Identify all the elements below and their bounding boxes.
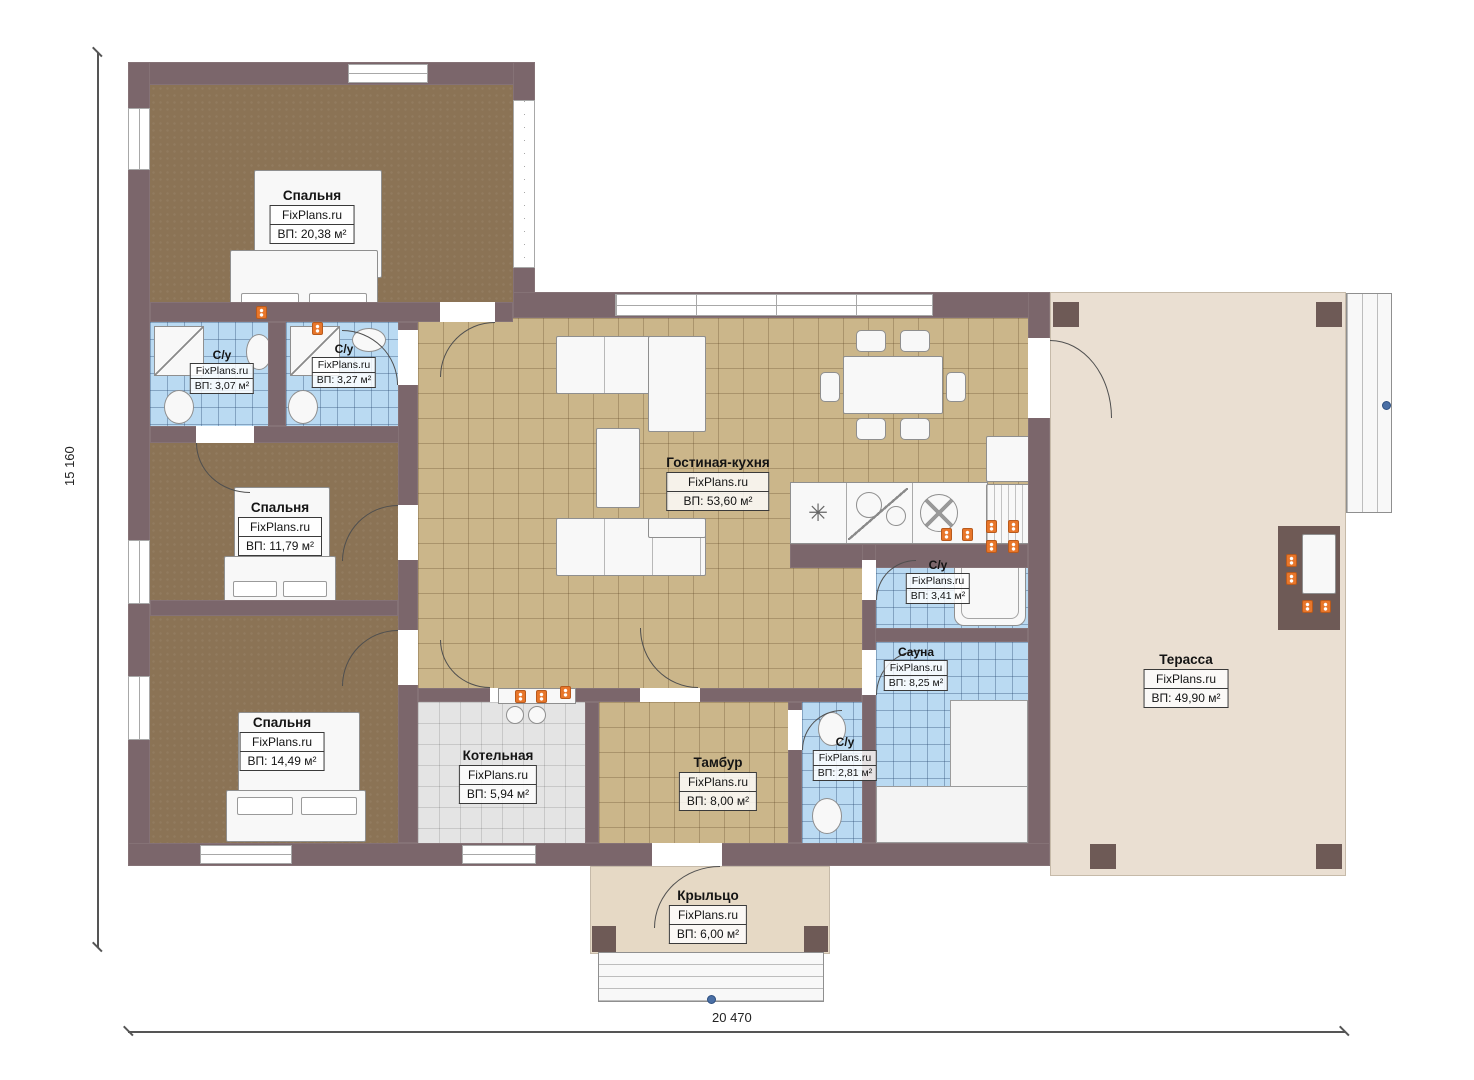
window bbox=[128, 108, 150, 170]
wall bbox=[150, 426, 418, 443]
room-label-sauna: Сауна FixPlans.ru ВП: 8,25 м² bbox=[884, 645, 948, 691]
brand-watermark: FixPlans.ru bbox=[884, 660, 948, 676]
faucet-line bbox=[848, 488, 908, 540]
outlet-icon bbox=[536, 690, 547, 703]
room-label-bedroom-1: Спальня FixPlans.ru ВП: 20,38 м² bbox=[270, 188, 355, 244]
door-opening bbox=[440, 302, 495, 322]
chair bbox=[900, 418, 930, 440]
wall bbox=[128, 62, 150, 866]
boiler-unit bbox=[506, 706, 524, 724]
brand-watermark: FixPlans.ru bbox=[190, 363, 254, 379]
room-area: ВП: 3,41 м² bbox=[906, 589, 970, 604]
window bbox=[615, 294, 933, 316]
room-label-bedroom-3: Спальня FixPlans.ru ВП: 14,49 м² bbox=[240, 715, 325, 771]
outlet-icon bbox=[1286, 572, 1297, 585]
room-label-bathroom-3: С/у FixPlans.ru ВП: 3,41 м² bbox=[906, 558, 970, 604]
room-label-living-kitchen: Гостиная-кухня FixPlans.ru ВП: 53,60 м² bbox=[666, 455, 769, 511]
bed bbox=[224, 556, 336, 602]
brand-watermark: FixPlans.ru bbox=[1144, 669, 1229, 689]
room-area: ВП: 3,27 м² bbox=[312, 373, 376, 388]
door-opening bbox=[788, 710, 802, 750]
outlet-icon bbox=[986, 540, 997, 553]
sofa-chaise bbox=[648, 336, 706, 432]
dimension-label-height: 15 160 bbox=[62, 446, 77, 486]
door-opening bbox=[862, 560, 876, 600]
chair bbox=[900, 330, 930, 352]
room-name: Сауна bbox=[884, 645, 948, 659]
counter-divider bbox=[846, 483, 847, 543]
brand-watermark: FixPlans.ru bbox=[312, 357, 376, 373]
brand-watermark: FixPlans.ru bbox=[270, 205, 355, 225]
toilet bbox=[288, 390, 318, 424]
room-area: ВП: 53,60 м² bbox=[666, 492, 769, 511]
brand-watermark: FixPlans.ru bbox=[813, 750, 877, 766]
door-opening bbox=[196, 426, 254, 443]
porch-post bbox=[804, 926, 828, 952]
sauna-bench bbox=[876, 786, 1028, 843]
pillow bbox=[283, 581, 327, 597]
window bbox=[128, 540, 150, 604]
door-opening bbox=[862, 650, 876, 695]
porch-post bbox=[592, 926, 616, 952]
wall bbox=[585, 702, 599, 843]
room-label-tambour: Тамбур FixPlans.ru ВП: 8,00 м² bbox=[679, 755, 757, 811]
room-area: ВП: 20,38 м² bbox=[270, 225, 355, 244]
pillow bbox=[237, 797, 293, 815]
room-area: ВП: 8,25 м² bbox=[884, 676, 948, 691]
brand-watermark: FixPlans.ru bbox=[906, 573, 970, 589]
floor-plan: 15 160 20 470 bbox=[0, 0, 1474, 1080]
dining-table bbox=[843, 356, 943, 414]
outlet-icon bbox=[1320, 600, 1331, 613]
dimension-line-horizontal bbox=[128, 1031, 1345, 1033]
room-name: С/у bbox=[813, 735, 877, 749]
room-name: Спальня bbox=[240, 715, 325, 730]
chair bbox=[856, 418, 886, 440]
entry-marker bbox=[707, 995, 716, 1004]
dimension-label-width: 20 470 bbox=[712, 1010, 752, 1025]
outlet-icon bbox=[1302, 600, 1313, 613]
room-area: ВП: 2,81 м² bbox=[813, 766, 877, 781]
room-label-boiler-room: Котельная FixPlans.ru ВП: 5,94 м² bbox=[459, 748, 537, 804]
dimension-line-vertical bbox=[97, 52, 99, 948]
wall bbox=[862, 628, 1028, 642]
brand-watermark: FixPlans.ru bbox=[666, 472, 769, 492]
kitchen-cabinet bbox=[986, 484, 1030, 544]
window bbox=[348, 64, 428, 83]
toilet bbox=[812, 798, 842, 834]
room-label-bedroom-2: Спальня FixPlans.ru ВП: 11,79 м² bbox=[238, 500, 322, 556]
room-area: ВП: 8,00 м² bbox=[679, 792, 757, 811]
outlet-icon bbox=[312, 322, 323, 335]
window bbox=[200, 845, 292, 864]
brand-watermark: FixPlans.ru bbox=[238, 517, 322, 537]
room-name: Тамбур bbox=[679, 755, 757, 770]
room-area: ВП: 3,07 м² bbox=[190, 379, 254, 394]
outlet-icon bbox=[1008, 540, 1019, 553]
brand-watermark: FixPlans.ru bbox=[679, 772, 757, 792]
outlet-icon bbox=[941, 528, 952, 541]
door-opening bbox=[398, 330, 418, 385]
counter-divider bbox=[912, 483, 913, 543]
toilet bbox=[164, 390, 194, 424]
boiler-unit bbox=[528, 706, 546, 724]
pillow bbox=[301, 797, 357, 815]
room-label-bathroom-4: С/у FixPlans.ru ВП: 2,81 м² bbox=[813, 735, 877, 781]
entry-marker bbox=[1382, 401, 1391, 410]
room-label-porch: Крыльцо FixPlans.ru ВП: 6,00 м² bbox=[669, 888, 747, 944]
room-label-terrace: Терасса FixPlans.ru ВП: 49,90 м² bbox=[1144, 652, 1229, 708]
outlet-icon bbox=[1008, 520, 1019, 533]
door-opening bbox=[640, 688, 700, 702]
room-area: ВП: 14,49 м² bbox=[240, 752, 325, 771]
bed bbox=[226, 790, 366, 842]
wall bbox=[268, 322, 286, 426]
door-opening bbox=[1028, 338, 1050, 418]
brand-watermark: FixPlans.ru bbox=[459, 765, 537, 785]
outlet-icon bbox=[1286, 554, 1297, 567]
room-name: Терасса bbox=[1144, 652, 1229, 667]
chair bbox=[856, 330, 886, 352]
window bbox=[462, 845, 536, 864]
sofa-arm bbox=[648, 518, 706, 538]
pillow bbox=[233, 581, 277, 597]
room-area: ВП: 6,00 м² bbox=[669, 925, 747, 944]
outlet-icon bbox=[986, 520, 997, 533]
door-opening bbox=[652, 843, 722, 866]
room-area: ВП: 11,79 м² bbox=[238, 537, 322, 556]
room-label-bathroom-1: С/у FixPlans.ru ВП: 3,07 м² bbox=[190, 348, 254, 394]
room-name: Спальня bbox=[270, 188, 355, 203]
door-opening bbox=[398, 630, 418, 685]
vent-symbol-icon: ✳ bbox=[792, 484, 844, 542]
window bbox=[513, 100, 535, 268]
door-opening bbox=[398, 505, 418, 560]
brand-watermark: FixPlans.ru bbox=[669, 905, 747, 925]
coffee-table bbox=[596, 428, 640, 508]
room-area: ВП: 5,94 м² bbox=[459, 785, 537, 804]
room-name: С/у bbox=[312, 342, 376, 356]
room-name: С/у bbox=[906, 558, 970, 572]
wall bbox=[398, 322, 418, 843]
room-name: Крыльцо bbox=[669, 888, 747, 903]
fireplace-hearth bbox=[1302, 534, 1336, 594]
window bbox=[128, 676, 150, 740]
terrace-post bbox=[1090, 844, 1116, 869]
terrace-post bbox=[1053, 302, 1079, 327]
terrace-post bbox=[1316, 302, 1342, 327]
outlet-icon bbox=[256, 306, 267, 319]
outlet-icon bbox=[560, 686, 571, 699]
outlet-icon bbox=[962, 528, 973, 541]
room-name: Спальня bbox=[238, 500, 322, 515]
room-area: ВП: 49,90 м² bbox=[1144, 689, 1229, 708]
room-name: Котельная bbox=[459, 748, 537, 763]
wall bbox=[150, 600, 398, 616]
room-name: Гостиная-кухня bbox=[666, 455, 769, 470]
outlet-icon bbox=[515, 690, 526, 703]
room-name: С/у bbox=[190, 348, 254, 362]
vent-glyph: ✳ bbox=[808, 499, 828, 528]
wall bbox=[128, 62, 535, 85]
room-label-bathroom-2: С/у FixPlans.ru ВП: 3,27 м² bbox=[312, 342, 376, 388]
terrace-post bbox=[1316, 844, 1342, 869]
brand-watermark: FixPlans.ru bbox=[240, 732, 325, 752]
chair bbox=[946, 372, 966, 402]
cooktop bbox=[920, 494, 958, 532]
fridge bbox=[986, 436, 1030, 482]
chair bbox=[820, 372, 840, 402]
